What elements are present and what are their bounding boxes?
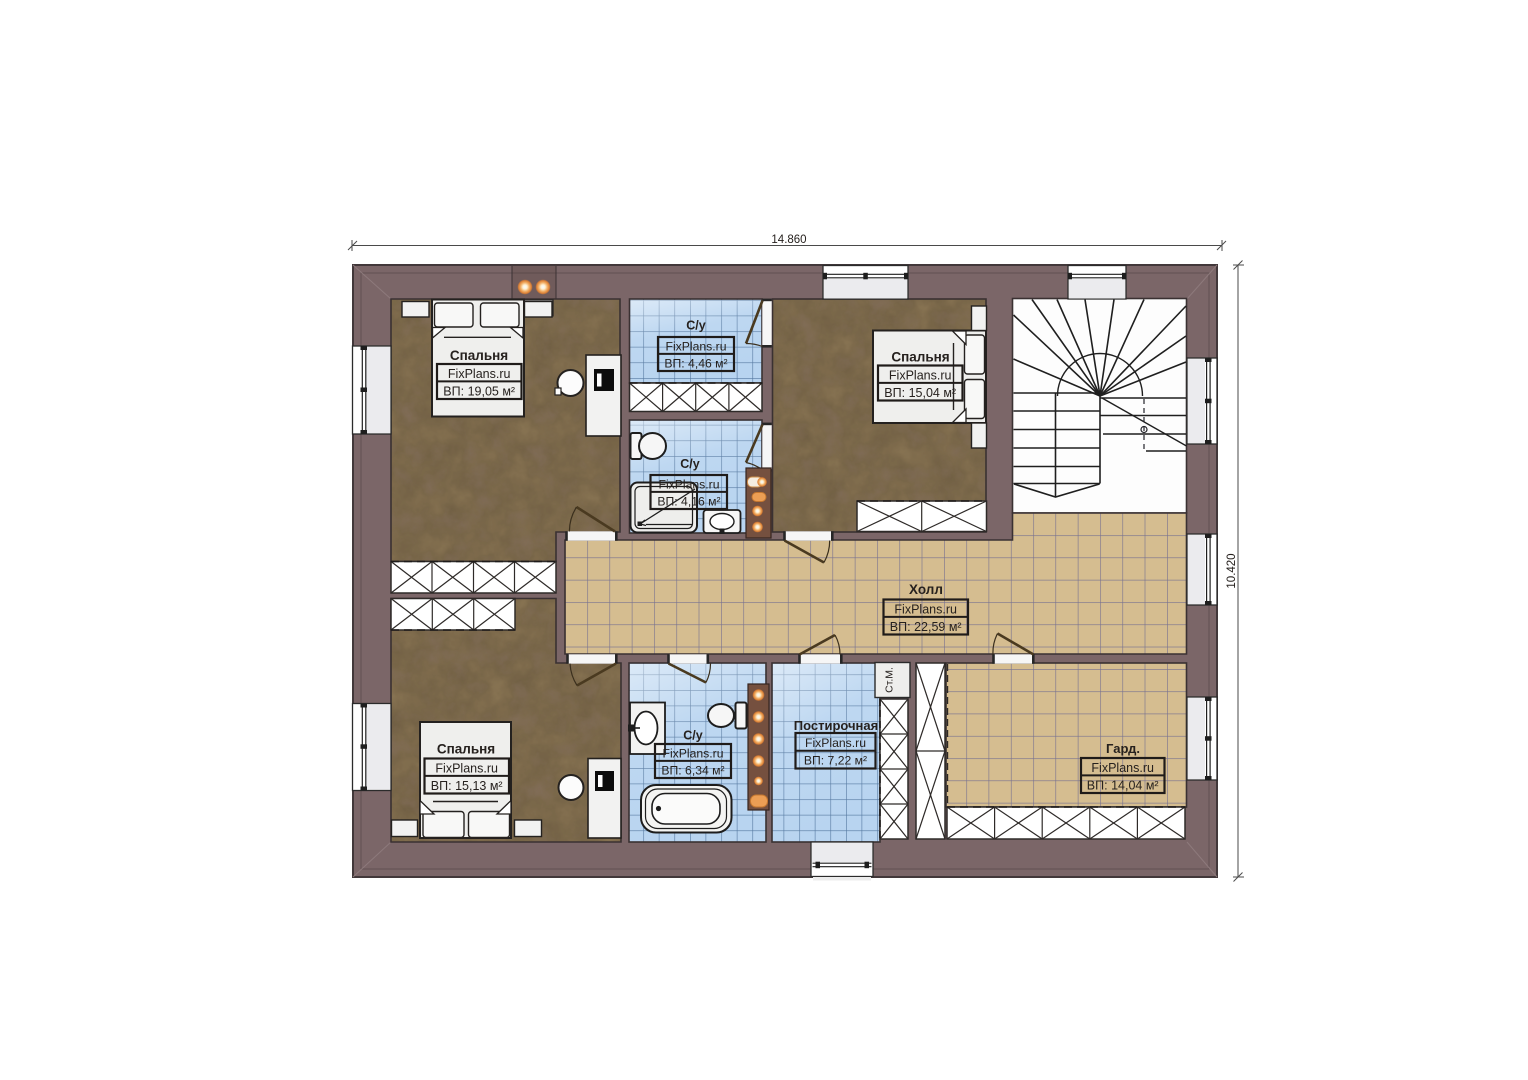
svg-text:FixPlans.ru: FixPlans.ru	[435, 762, 498, 776]
svg-text:С/у: С/у	[686, 319, 706, 333]
svg-text:ВП: 4,16 м²: ВП: 4,16 м²	[657, 495, 720, 509]
svg-text:ВП: 6,34 м²: ВП: 6,34 м²	[661, 764, 724, 778]
svg-text:Постирочная: Постирочная	[794, 718, 878, 733]
svg-text:С/у: С/у	[680, 457, 700, 471]
svg-text:FixPlans.ru: FixPlans.ru	[666, 340, 727, 354]
svg-text:FixPlans.ru: FixPlans.ru	[889, 369, 952, 383]
svg-text:ВП: 19,05 м²: ВП: 19,05 м²	[443, 385, 515, 399]
svg-text:Спальня: Спальня	[891, 350, 949, 365]
svg-text:Спальня: Спальня	[450, 348, 508, 363]
svg-text:ВП: 4,46 м²: ВП: 4,46 м²	[664, 357, 727, 371]
svg-text:Ст.М.: Ст.М.	[884, 667, 896, 693]
svg-text:FixPlans.ru: FixPlans.ru	[663, 747, 724, 761]
svg-text:FixPlans.ru: FixPlans.ru	[894, 603, 957, 617]
svg-text:ВП: 14,04 м²: ВП: 14,04 м²	[1087, 779, 1159, 793]
svg-text:FixPlans.ru: FixPlans.ru	[659, 478, 720, 492]
svg-text:10.420: 10.420	[1226, 553, 1238, 588]
svg-text:Гард.: Гард.	[1106, 741, 1140, 756]
svg-text:С/у: С/у	[683, 729, 703, 743]
svg-text:Холл: Холл	[909, 582, 943, 597]
svg-text:ВП: 7,22 м²: ВП: 7,22 м²	[804, 754, 867, 768]
svg-text:FixPlans.ru: FixPlans.ru	[805, 736, 866, 750]
svg-text:FixPlans.ru: FixPlans.ru	[1091, 761, 1154, 775]
svg-text:14.860: 14.860	[771, 234, 806, 246]
svg-text:ВП: 15,04 м²: ВП: 15,04 м²	[884, 386, 956, 400]
svg-text:FixPlans.ru: FixPlans.ru	[448, 367, 511, 381]
svg-text:ВП: 15,13 м²: ВП: 15,13 м²	[431, 779, 503, 793]
svg-text:ВП: 22,59 м²: ВП: 22,59 м²	[890, 620, 962, 634]
svg-text:Спальня: Спальня	[437, 742, 495, 757]
